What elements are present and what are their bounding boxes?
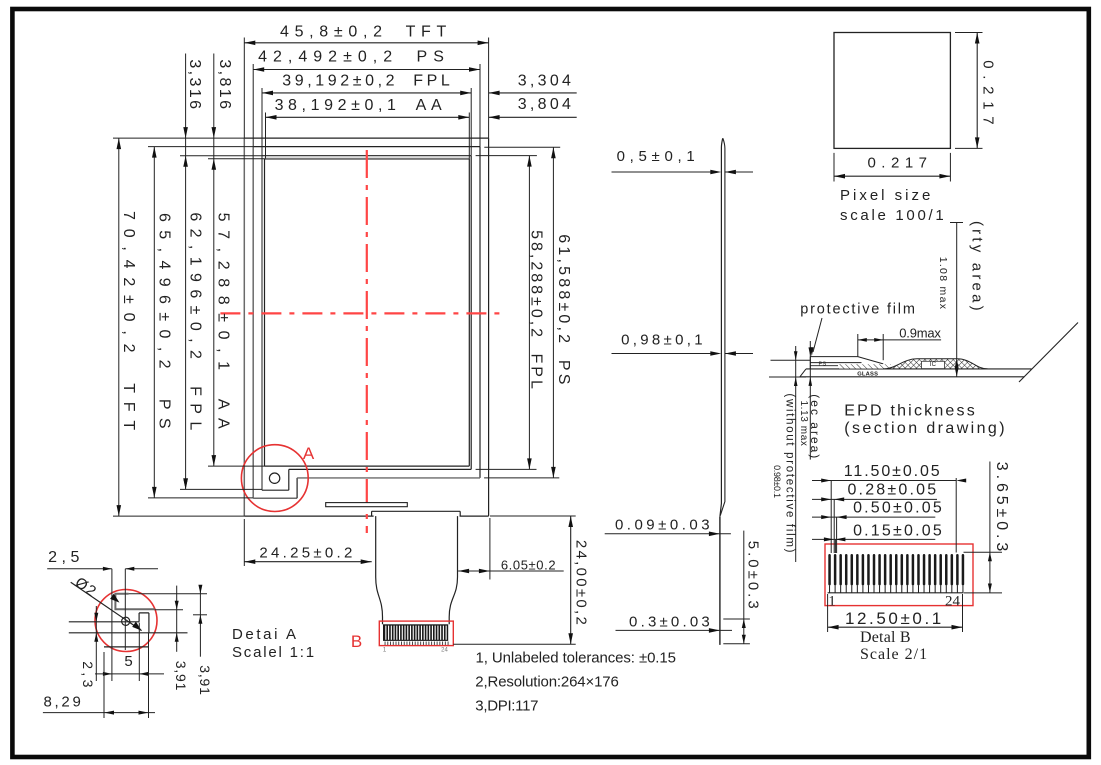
svg-text:45,8±0,2 TFT: 45,8±0,2 TFT xyxy=(280,24,452,41)
svg-text:Scale 2/1: Scale 2/1 xyxy=(860,646,928,663)
svg-text:0.3±0.03: 0.3±0.03 xyxy=(629,613,713,630)
svg-text:65,496±0,2 PS: 65,496±0,2 PS xyxy=(155,213,172,437)
svg-text:0.50±0.05: 0.50±0.05 xyxy=(853,500,944,517)
svg-text:0.28±0.05: 0.28±0.05 xyxy=(847,482,938,499)
svg-text:scale 100/1: scale 100/1 xyxy=(840,207,946,224)
svg-text:3,DPI:117: 3,DPI:117 xyxy=(475,698,538,715)
svg-text:39,192±0,2 FPL: 39,192±0,2 FPL xyxy=(282,73,453,90)
svg-text:(without protective film): (without protective film) xyxy=(783,393,795,554)
svg-text:IC: IC xyxy=(930,362,937,368)
svg-text:0,5±0,1: 0,5±0,1 xyxy=(617,148,700,165)
svg-text:11.50±0.05: 11.50±0.05 xyxy=(844,463,942,480)
svg-text:(rty area): (rty area) xyxy=(969,221,986,314)
svg-text:62,196±0,2 FPL: 62,196±0,2 FPL xyxy=(187,212,204,437)
svg-text:5.0±0.3: 5.0±0.3 xyxy=(744,541,761,612)
svg-text:3,91: 3,91 xyxy=(173,661,189,691)
svg-text:0.15±0.05: 0.15±0.05 xyxy=(853,522,944,539)
svg-text:EPD thickness: EPD thickness xyxy=(844,403,977,420)
svg-text:3,91: 3,91 xyxy=(197,665,213,695)
svg-text:B: B xyxy=(351,632,363,651)
svg-text:3,816: 3,816 xyxy=(216,59,233,111)
svg-text:38,192±0,1 AA: 38,192±0,1 AA xyxy=(275,97,447,114)
svg-text:57,288±0,1 AA: 57,288±0,1 AA xyxy=(214,213,231,438)
svg-text:2,Resolution:264×176: 2,Resolution:264×176 xyxy=(475,674,618,691)
svg-text:0,98±0,1: 0,98±0,1 xyxy=(621,331,706,348)
svg-text:3,804: 3,804 xyxy=(518,96,575,113)
svg-text:6.05±0.2: 6.05±0.2 xyxy=(501,558,556,573)
svg-text:61,588±0,2 PS: 61,588±0,2 PS xyxy=(555,234,572,387)
svg-text:3.65±0.3: 3.65±0.3 xyxy=(993,462,1010,555)
svg-text:3,316: 3,316 xyxy=(186,59,203,111)
svg-text:0.217: 0.217 xyxy=(980,60,997,131)
svg-text:GLASS: GLASS xyxy=(857,372,878,378)
svg-text:1.08 max: 1.08 max xyxy=(937,257,949,311)
svg-text:0.09±0.03: 0.09±0.03 xyxy=(615,517,713,534)
svg-text:70,42±0,2 TFT: 70,42±0,2 TFT xyxy=(120,211,137,439)
svg-text:protective film: protective film xyxy=(800,302,916,318)
svg-text:24.25±0.2: 24.25±0.2 xyxy=(259,544,355,561)
svg-text:2,5: 2,5 xyxy=(48,549,84,566)
svg-text:24: 24 xyxy=(945,594,961,610)
svg-text:Scalel 1:1: Scalel 1:1 xyxy=(232,644,316,661)
svg-text:24: 24 xyxy=(441,648,448,654)
svg-text:0.9max: 0.9max xyxy=(899,325,941,340)
svg-text:Detal B: Detal B xyxy=(860,629,911,646)
svg-text:1.13 max: 1.13 max xyxy=(798,401,809,447)
svg-text:0.217: 0.217 xyxy=(867,155,932,172)
svg-text:0.98±0.1: 0.98±0.1 xyxy=(772,465,782,498)
svg-text:1, Unlabeled tolerances: ±0.15: 1, Unlabeled tolerances: ±0.15 xyxy=(476,650,676,667)
svg-text:58,288±0,2 FPL: 58,288±0,2 FPL xyxy=(527,230,544,392)
svg-text:Detai A: Detai A xyxy=(232,626,299,643)
svg-text:A: A xyxy=(303,444,315,463)
svg-text:1: 1 xyxy=(828,594,836,610)
svg-text:8,29: 8,29 xyxy=(44,693,84,710)
svg-text:5: 5 xyxy=(124,653,132,670)
svg-text:PS: PS xyxy=(819,361,827,367)
svg-text:(ec area): (ec area) xyxy=(808,394,822,460)
svg-text:3,304: 3,304 xyxy=(518,72,575,89)
svg-text:Pixel size: Pixel size xyxy=(840,187,933,204)
svg-text:24,00±0,2: 24,00±0,2 xyxy=(572,540,589,627)
svg-text:2,3: 2,3 xyxy=(80,661,96,690)
svg-text:(section drawing): (section drawing) xyxy=(844,420,1007,437)
svg-text:12.50±0.1: 12.50±0.1 xyxy=(845,609,944,628)
svg-text:42,492±0,2 PS: 42,492±0,2 PS xyxy=(258,49,450,66)
